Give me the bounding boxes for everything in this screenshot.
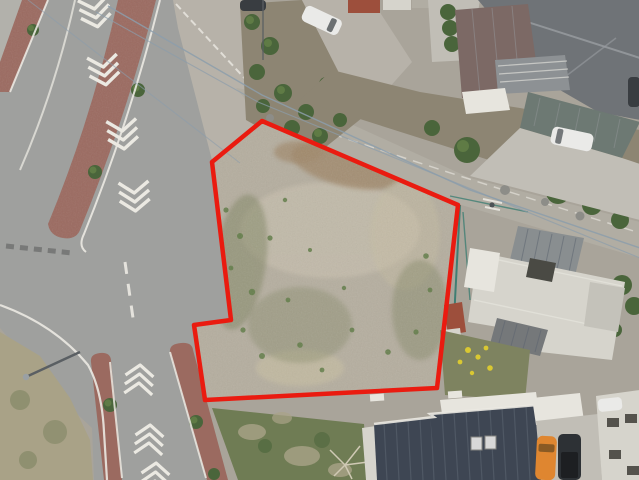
streetlight-lamp bbox=[23, 374, 29, 380]
parked-car-dark-top bbox=[240, 0, 266, 11]
parked-car-right-edge bbox=[628, 77, 639, 107]
roof-cargo-box bbox=[561, 452, 578, 478]
parked-black-van bbox=[558, 434, 581, 480]
parked-orange-car bbox=[535, 436, 557, 480]
aerial-photo bbox=[0, 0, 639, 480]
white-tower-wing bbox=[464, 248, 500, 292]
utility-pole bbox=[489, 202, 494, 207]
aerial-photo-canvas bbox=[0, 0, 639, 480]
roof-window-1 bbox=[471, 437, 482, 450]
white-building-right bbox=[596, 390, 639, 480]
parked-white-car-bottom bbox=[597, 397, 622, 412]
white-awning bbox=[462, 88, 510, 114]
roof-window-2 bbox=[485, 436, 496, 449]
terrace bbox=[584, 282, 625, 332]
balcony bbox=[495, 55, 570, 94]
